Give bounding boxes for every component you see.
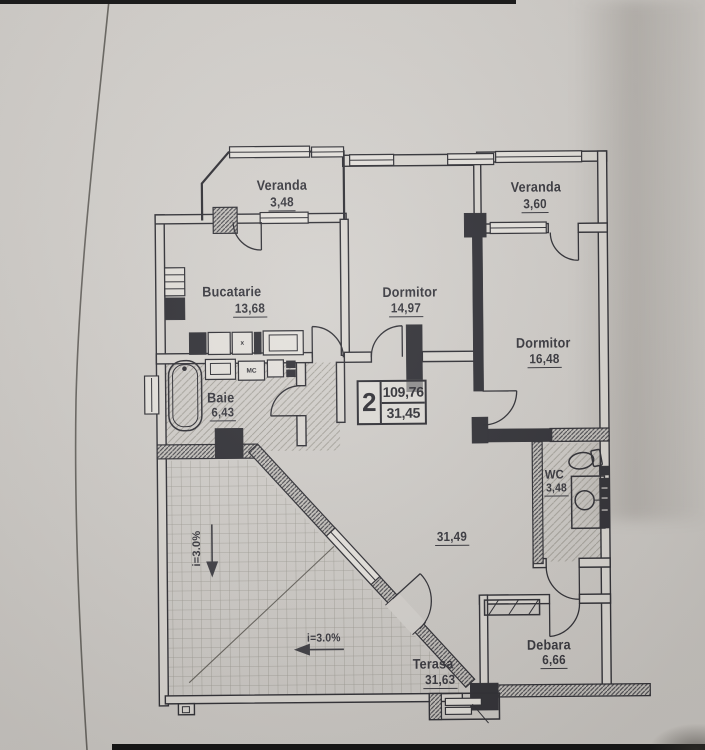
photo-corner-shadow (650, 724, 705, 750)
photo-top-edge (0, 0, 516, 4)
photo-vignette (0, 0, 705, 750)
photo-bottom-edge (112, 744, 705, 750)
floorplan-photo: Veranda 3,48 Veranda 3,60 Bucatarie 13,6… (0, 0, 705, 750)
